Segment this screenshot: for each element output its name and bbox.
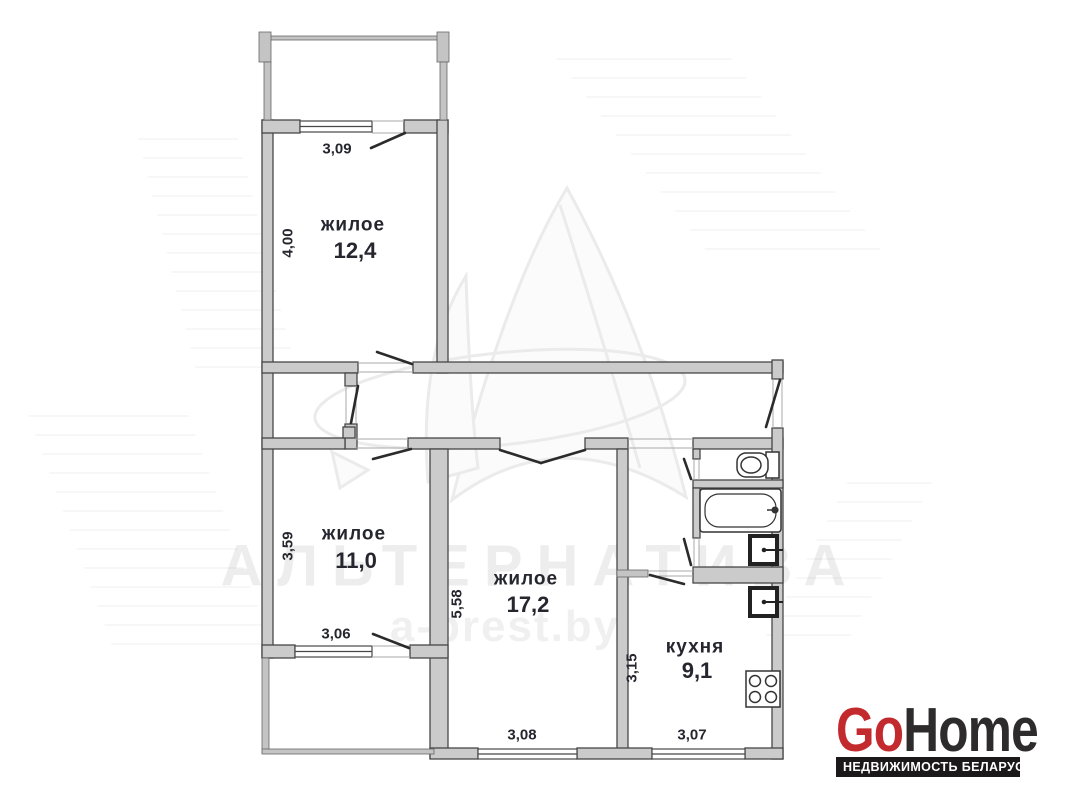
room-area: 17,2: [507, 594, 550, 616]
dimension: 3,15: [625, 653, 640, 682]
logo-go-text: Go: [836, 696, 903, 765]
room-label: кухня: [666, 638, 724, 657]
plan-labels: жилое 12,4 3,09 4,00 жилое 11,0 3,06 3,5…: [0, 0, 1068, 800]
room-label: жилое: [321, 216, 385, 235]
dimension: 5,58: [450, 589, 465, 618]
logo-home-text: Home: [903, 696, 1038, 765]
room-area: 9,1: [682, 660, 713, 682]
dimension: 3,08: [507, 728, 536, 743]
dimension: 3,07: [677, 728, 706, 743]
room-label: жилое: [494, 570, 558, 589]
room-area: 12,4: [334, 240, 377, 262]
dimension: 3,09: [322, 142, 351, 157]
room-area: 11,0: [335, 550, 377, 572]
dimension: 3,06: [321, 627, 350, 642]
room-label: жилое: [322, 525, 386, 544]
gohome-logo-text: GoHome: [836, 708, 993, 754]
dimension: 4,00: [281, 228, 296, 257]
gohome-logo: GoHome НЕДВИЖИМОСТЬ БЕЛАРУСИ: [836, 708, 1032, 777]
dimension: 3,59: [281, 531, 296, 560]
